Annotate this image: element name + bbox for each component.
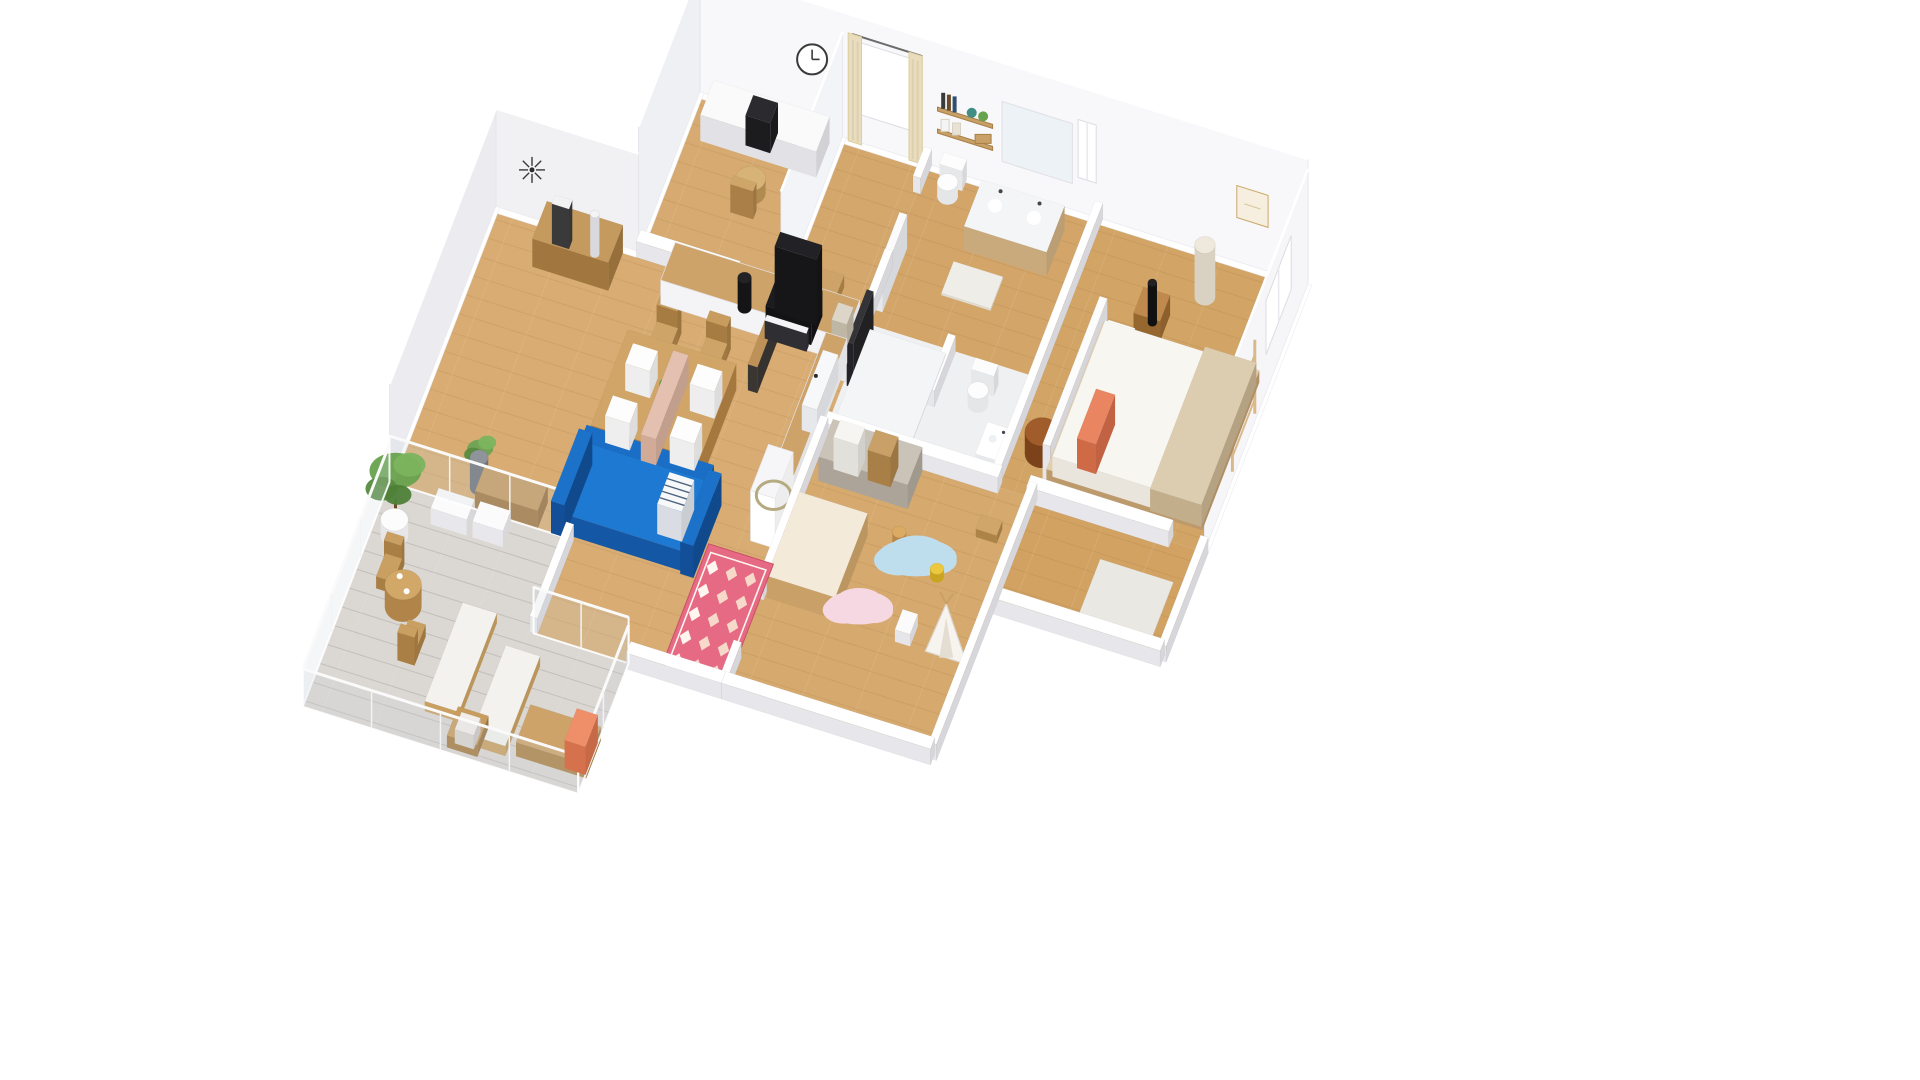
wc-toilet <box>968 382 989 413</box>
bath-toilet <box>937 174 958 205</box>
kettle <box>738 272 752 313</box>
placemat <box>625 343 658 398</box>
office-chair-back <box>730 176 756 220</box>
bistro-chair-back <box>397 624 418 666</box>
sideboard-vase <box>590 210 599 258</box>
floor-lamp <box>1195 236 1216 305</box>
floorplan-3d-render <box>0 0 1920 1080</box>
floorplan-svg <box>0 0 1920 1080</box>
office-laptop <box>746 95 779 153</box>
dresser-basket <box>868 430 899 488</box>
placemat <box>605 395 638 450</box>
toy-duck <box>930 563 944 582</box>
dresser-towels <box>834 420 866 477</box>
nightstand-lamp <box>1148 279 1157 327</box>
range-hood <box>775 232 822 326</box>
sideboard-frames <box>552 195 572 249</box>
placemat <box>670 416 703 471</box>
placemat <box>690 364 723 419</box>
bistro-table <box>385 570 422 622</box>
